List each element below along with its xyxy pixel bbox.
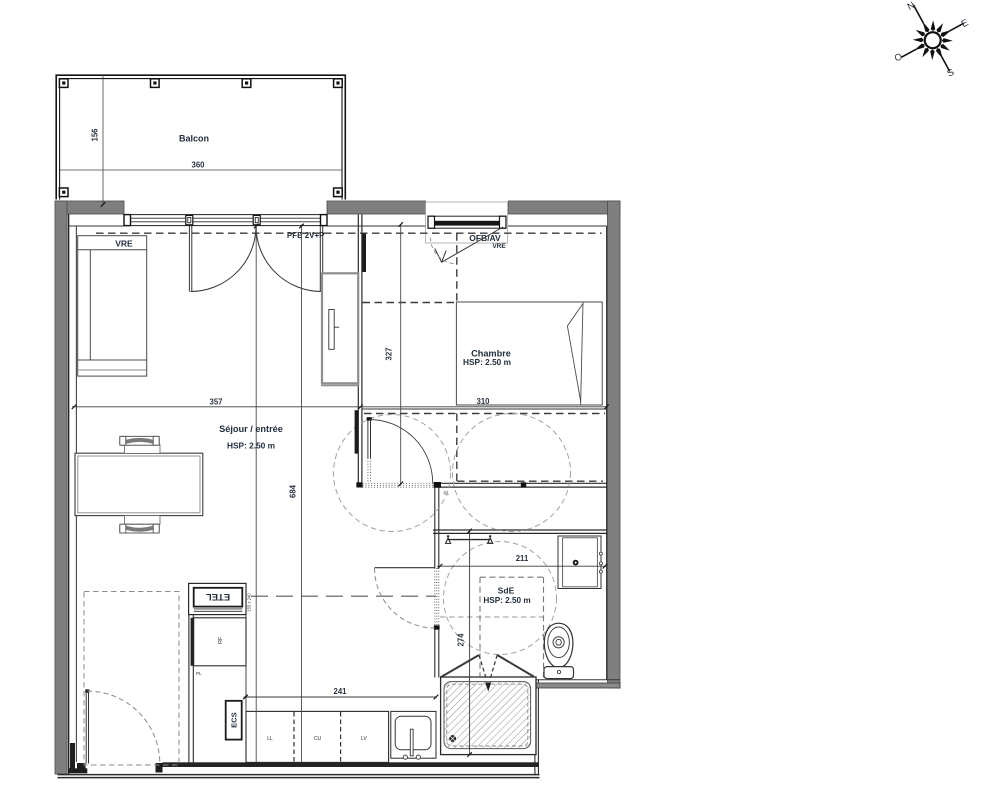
svg-text:327: 327 <box>384 347 393 360</box>
svg-text:ECS: ECS <box>229 712 238 727</box>
svg-text:HSP: 2.50 m: HSP: 2.50 m <box>227 441 275 451</box>
svg-text:RF: RF <box>218 636 224 644</box>
svg-text:LV: LV <box>361 736 367 742</box>
svg-text:211: 211 <box>516 554 529 563</box>
svg-text:310: 310 <box>476 397 490 406</box>
svg-text:VRE: VRE <box>492 243 506 250</box>
svg-text:SdE: SdE <box>498 586 515 596</box>
svg-text:VRE: VRE <box>115 239 133 249</box>
svg-text:274: 274 <box>457 633 466 647</box>
svg-text:360: 360 <box>191 161 205 170</box>
svg-text:Balcon: Balcon <box>179 134 209 144</box>
svg-text:LL: LL <box>267 736 273 742</box>
svg-text:241: 241 <box>333 687 347 696</box>
svg-text:HSP: 2.50 m: HSP: 2.50 m <box>463 357 511 367</box>
svg-text:156: 156 <box>91 128 100 142</box>
svg-text:OFB/AV: OFB/AV <box>469 233 501 243</box>
svg-text:357: 357 <box>209 398 222 407</box>
svg-text:Séjour / entrée: Séjour / entrée <box>219 424 283 434</box>
svg-text:684: 684 <box>289 484 298 498</box>
svg-text:ETEL: ETEL <box>206 591 230 602</box>
svg-text:155 x 240: 155 x 240 <box>247 593 252 612</box>
svg-text:PL: PL <box>196 671 202 676</box>
svg-text:CU: CU <box>314 736 322 742</box>
svg-text:PFE 2V+P: PFE 2V+P <box>287 231 325 240</box>
svg-text:HSP: 2.50 m: HSP: 2.50 m <box>483 596 530 605</box>
